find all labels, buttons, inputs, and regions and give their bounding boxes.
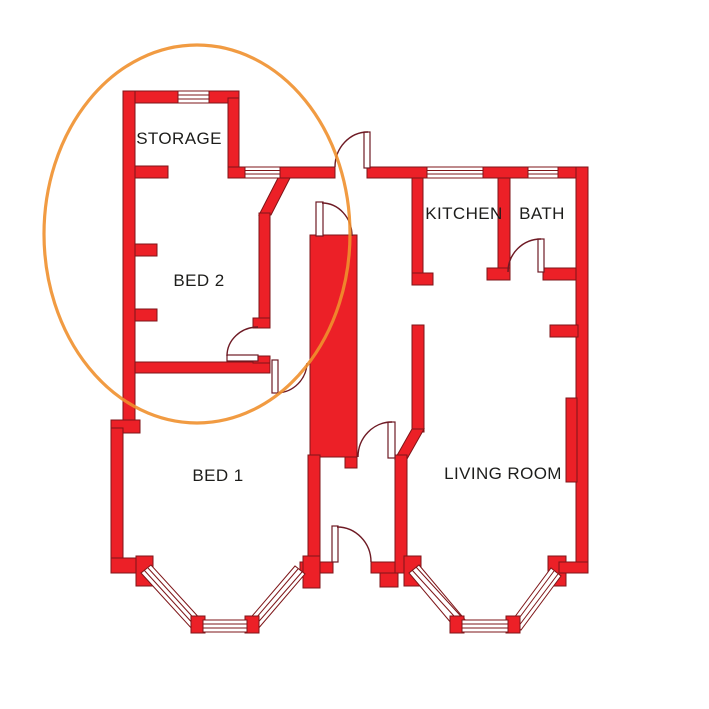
wall-segment [566, 398, 577, 482]
wall-segment [550, 325, 578, 337]
window-glazing-line [144, 570, 196, 627]
door-leaf-living-room [388, 422, 395, 458]
window [528, 167, 558, 178]
wall-segment [135, 309, 157, 321]
wall-segment [308, 455, 320, 573]
window [245, 167, 280, 178]
room-label-bath: BATH [519, 204, 565, 224]
door-leaf-bed1 [272, 360, 278, 393]
bay-window-band [462, 620, 508, 632]
door-leaf-bed2 [227, 355, 258, 361]
wall-segment [228, 98, 239, 171]
window-glazing-line [416, 567, 468, 624]
window-glazing-line [518, 574, 558, 627]
wall-segment [412, 178, 423, 275]
wall-segment [543, 268, 576, 280]
wall-segment [412, 273, 433, 285]
window-glazing-line [254, 572, 302, 627]
wall-segment [395, 455, 407, 573]
room-label-bed1: BED 1 [192, 466, 243, 486]
wall-segment [135, 244, 157, 256]
door-leaf-bath [538, 239, 544, 272]
stairs-block [310, 235, 357, 457]
room-label-storage: STORAGE [136, 129, 222, 149]
wall-segment [380, 573, 398, 587]
wall-segment-diagonal [259, 178, 290, 215]
bay-window-bed1 [141, 565, 305, 633]
room-label-living-room: LIVING ROOM [444, 464, 562, 484]
door-arc-bed1 [277, 363, 307, 393]
walls [111, 91, 588, 588]
wall-segment [345, 457, 357, 468]
door-leaf-stairs [316, 202, 323, 236]
door-arc-entry [337, 527, 371, 562]
wall-segment [303, 556, 320, 588]
door-leaf-entry [332, 526, 338, 562]
wall-segment [135, 362, 270, 373]
wall-segment [123, 91, 135, 428]
wall-segment [576, 167, 588, 573]
wall-segment [559, 562, 588, 573]
floorplan-drawing [0, 0, 709, 709]
wall-segment [487, 268, 510, 280]
wall-segment [412, 325, 424, 432]
floorplan-canvas: STORAGE BED 2 BED 1 KITCHEN BATH LIVING … [0, 0, 709, 709]
door-arc-bath [508, 239, 541, 272]
room-label-bed2: BED 2 [173, 271, 224, 291]
wall-segment [498, 178, 510, 270]
wall-segment [111, 428, 123, 568]
bay-window-band [203, 620, 247, 632]
door-leaf-front [364, 132, 370, 168]
wall-segment [259, 213, 270, 328]
wall-segment [135, 166, 168, 178]
bay-window-living-room [409, 565, 561, 633]
wall-segment [228, 167, 335, 178]
window [427, 167, 483, 178]
door-arc-bed2 [227, 327, 258, 356]
door-arc-living-room [358, 422, 392, 457]
window [178, 91, 209, 103]
room-label-kitchen: KITCHEN [425, 204, 502, 224]
